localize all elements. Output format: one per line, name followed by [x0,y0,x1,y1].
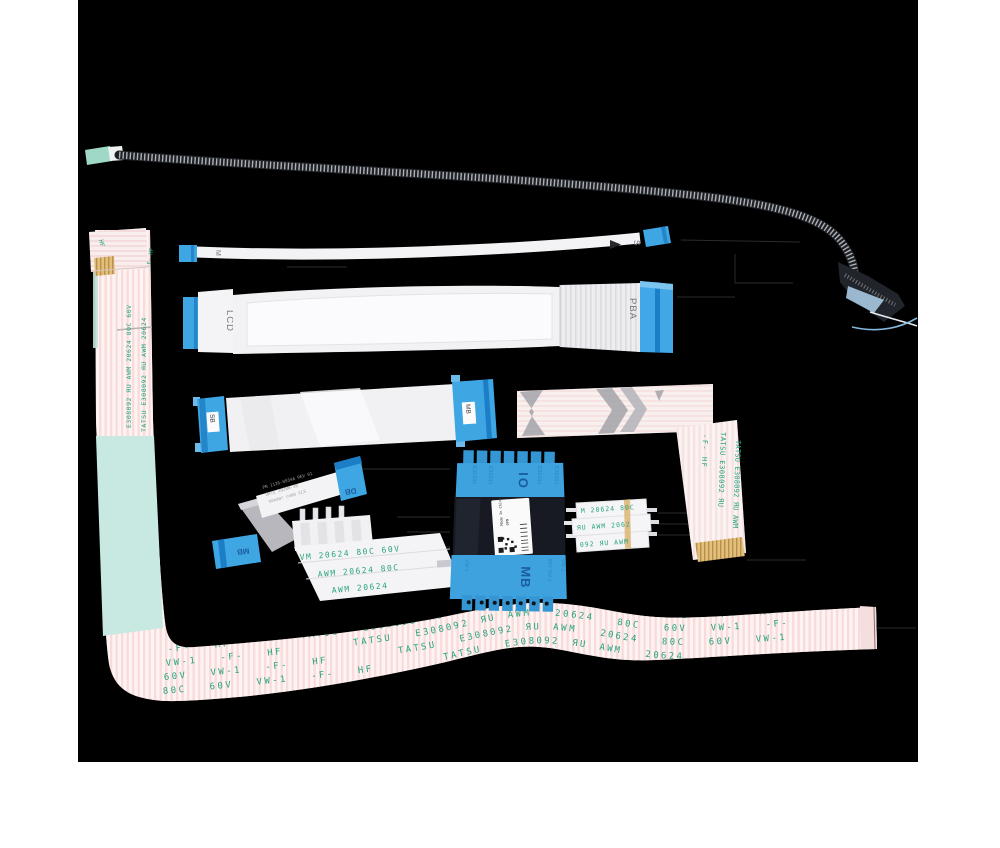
mb-marking: MB [236,546,250,557]
io-board-ffc-cable: E35341 E35341 E35341 E35341 IO Made In C… [450,450,570,612]
connector-prong [326,507,331,520]
teal-backing [96,436,163,636]
connector-stripe [191,245,194,262]
m-marking: M [214,250,221,256]
photo-svg: M S LCD PBA SB [0,0,1000,848]
pba-marking: PBA [627,298,638,320]
mb-label: MB [462,402,477,425]
edge-print: E35341 [487,466,493,485]
bottom-print: VW-1 [559,559,565,572]
mb-marking: MB [518,566,533,588]
housing-slot [351,520,362,543]
connector-wing [451,375,460,382]
sb-label-text: SB [208,414,216,423]
edge-print: E35341 [536,465,542,484]
housing-slot [300,523,311,546]
ribbon-print-2: TATSU E308092 ЯU AWM 20624 [140,317,148,432]
connector-stripe [655,282,660,353]
thin-cable-left-connector [179,245,197,262]
ribbon-print-1: E308092 ЯU AWM 20624 80C 60V [125,304,133,428]
s-marking: S [632,240,642,246]
edge-print: E35341 [471,465,477,484]
edge-print: E35341 [553,466,559,485]
sb-label: SB [206,412,219,433]
connector-prong [339,506,344,519]
housing-slot [334,521,345,544]
db-marking: DB [344,486,357,497]
connector-stripe [194,297,198,349]
bottom-print: 60V VW-1 [546,559,552,582]
jumper-pin [566,508,576,512]
jumper-ffc-cable: M 20624 80C ЯU AWM 2062 092 ЯU AWM [564,499,659,552]
display-cable-inner [247,293,552,346]
l-cable-print-1: -F- HF [700,434,709,469]
io-marking: IO [516,472,531,490]
jumper-pin [646,508,657,512]
part-label: Made In China DPN [491,496,533,557]
gold-contacts [94,256,115,276]
housing-slot [317,522,328,545]
dark-sheen [455,498,481,557]
bottom-print: VW-1 [463,559,469,572]
mb-label-text: MB [464,404,472,414]
connector-prong [300,509,305,522]
product-photo: M S LCD PBA SB [0,0,1000,848]
connector-prong [313,508,318,521]
label-line-2: DPN [505,519,509,526]
